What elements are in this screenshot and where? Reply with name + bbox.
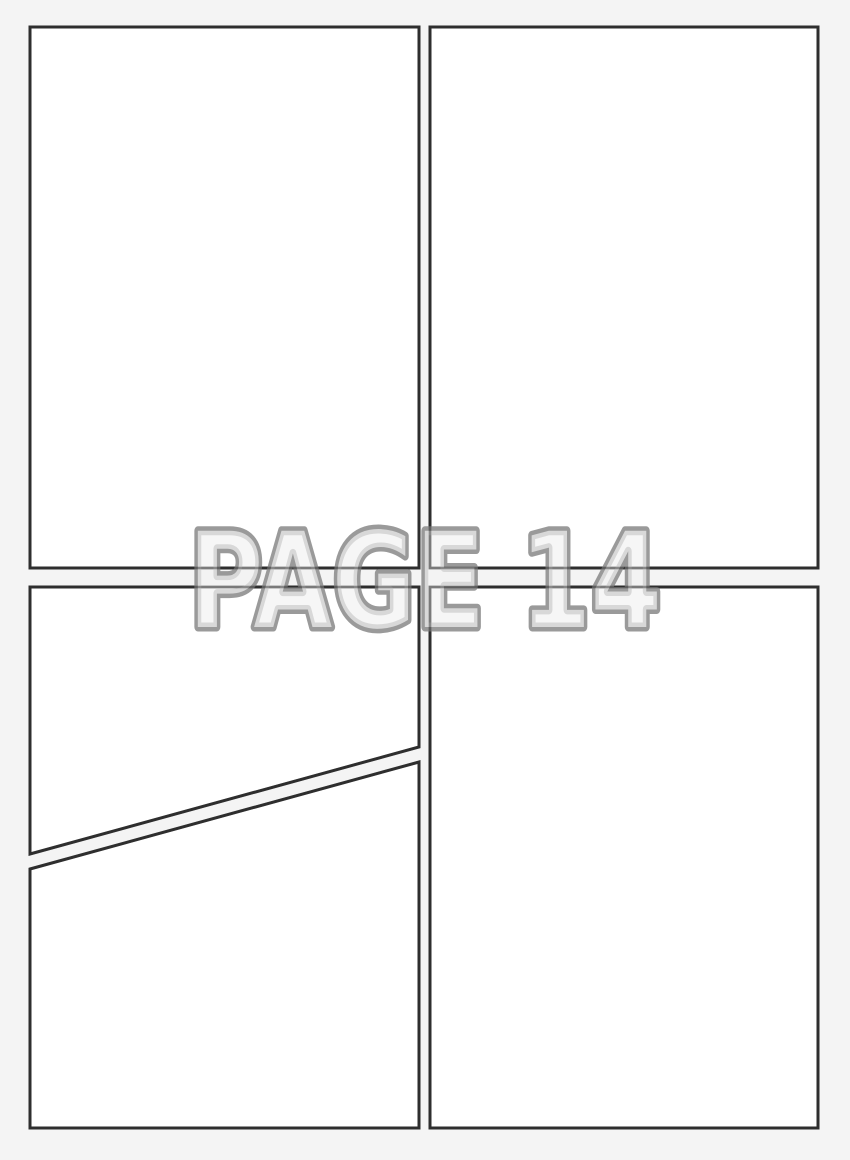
panel-top-left xyxy=(30,27,419,568)
panel-bottom-right xyxy=(430,587,818,1128)
panel-top-right xyxy=(430,27,818,568)
comic-page-template: PAGE 14 xyxy=(0,0,850,1160)
comic-page-canvas: PAGE 14 xyxy=(0,0,850,1160)
page-number-watermark: PAGE 14 xyxy=(189,505,662,659)
